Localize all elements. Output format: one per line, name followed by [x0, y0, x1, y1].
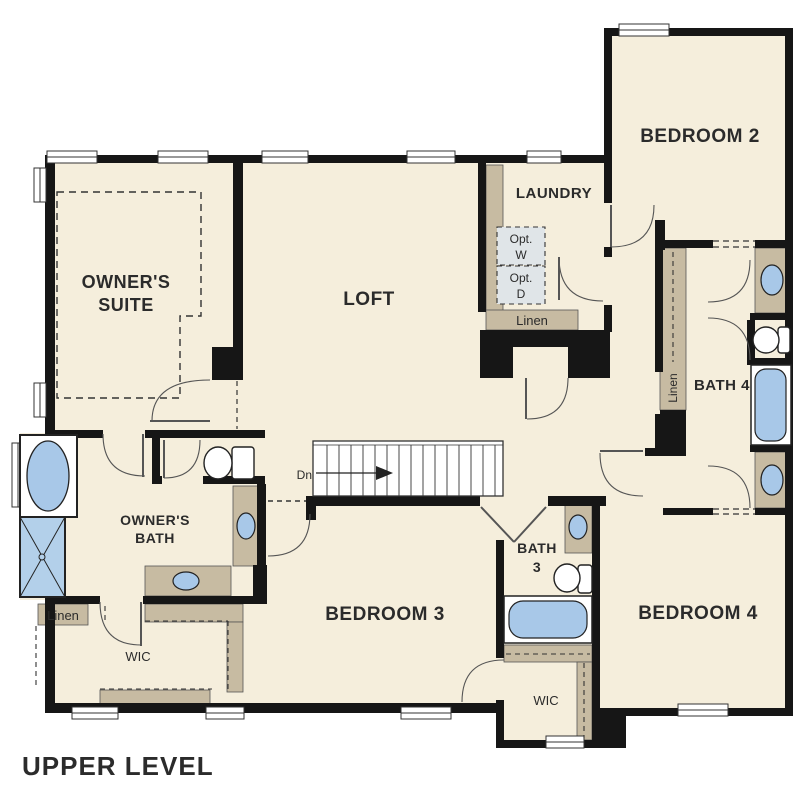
window — [407, 151, 455, 163]
opt-dryer-label-2: D — [517, 287, 526, 301]
owners-bath-shower — [20, 517, 65, 597]
stairs — [313, 441, 503, 496]
wic-hall-label: WIC — [533, 693, 558, 708]
wic-owner-label: WIC — [125, 649, 150, 664]
linen-owner-label: Linen — [47, 608, 79, 623]
loft-label: LOFT — [343, 289, 395, 310]
opt-dryer-label: Opt. — [510, 271, 533, 285]
owners-bath-label: OWNER'S — [120, 512, 190, 528]
window — [206, 707, 244, 719]
bath3-label: BATH — [517, 540, 557, 556]
wic-owner-shelf-top — [145, 604, 243, 622]
bath4-tub — [751, 365, 791, 445]
window — [72, 707, 118, 719]
bath3-sink — [569, 515, 587, 539]
bath3-tub — [504, 596, 592, 643]
bath4-sink-bottom — [761, 465, 783, 495]
linen-bath4-label: Linen — [666, 373, 680, 402]
wic-owner-shelf-bottom — [100, 690, 210, 704]
window — [546, 736, 584, 748]
owners-bath-sink-right — [237, 513, 255, 539]
bedroom4-label: BEDROOM 4 — [638, 603, 758, 624]
opt-washer-label: Opt. — [510, 232, 533, 246]
bath4-toilet — [753, 327, 790, 353]
floor-plan: OWNER'S SUITE LOFT LAUNDRY BEDROOM 2 BED… — [0, 0, 810, 810]
window — [619, 24, 669, 36]
window — [34, 383, 46, 417]
window — [527, 151, 561, 163]
linen-hall-label: Linen — [516, 313, 548, 328]
window — [401, 707, 451, 719]
opt-washer-label-2: W — [515, 248, 527, 262]
window — [47, 151, 97, 163]
laundry-label: LAUNDRY — [516, 185, 592, 202]
bedroom2-label: BEDROOM 2 — [640, 126, 760, 147]
window — [158, 151, 208, 163]
stairs-down-label: Dn — [297, 468, 312, 482]
wic-owner-shelf-right — [227, 622, 243, 692]
bath3-toilet — [554, 564, 592, 593]
bath3-label-2: 3 — [533, 559, 541, 575]
bath4-label: BATH 4 — [694, 377, 750, 394]
owners-suite-label-2: SUITE — [98, 295, 154, 315]
owners-bath-label-2: BATH — [135, 530, 175, 546]
window — [34, 168, 46, 202]
owners-bath-sink-bottom — [173, 572, 199, 590]
owners-suite-label: OWNER'S — [82, 272, 171, 292]
window — [262, 151, 308, 163]
bedroom3-label: BEDROOM 3 — [325, 604, 445, 625]
bath4-sink-top — [761, 265, 783, 295]
owners-bath-tub — [20, 435, 77, 517]
window — [678, 704, 728, 716]
plan-title: UPPER LEVEL — [22, 751, 214, 781]
